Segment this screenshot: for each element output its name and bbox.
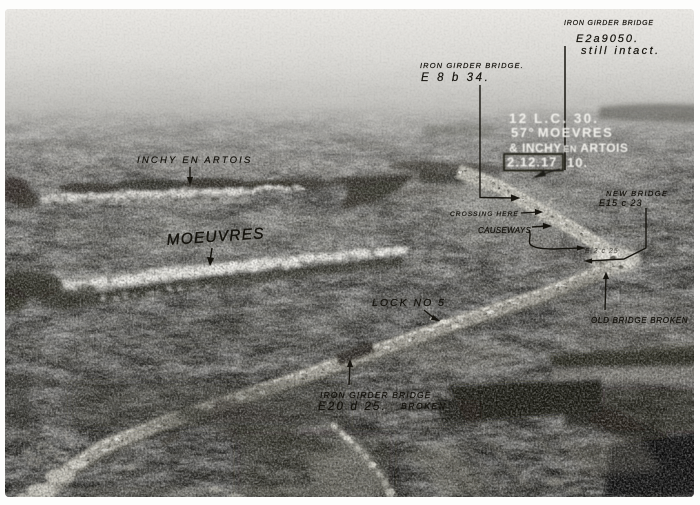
- svg-text:E 8 b 34.: E 8 b 34.: [421, 72, 490, 84]
- svg-text:NEW BRIDGE: NEW BRIDGE: [606, 189, 668, 198]
- svg-text:OLD BRIDGE BROKEN: OLD BRIDGE BROKEN: [591, 316, 688, 325]
- svg-text:2.12.17: 2.12.17: [507, 155, 557, 170]
- svg-text:IRON GIRDER BRIDGE.: IRON GIRDER BRIDGE.: [420, 61, 524, 70]
- svg-text:E20 d 25.: E20 d 25.: [318, 401, 387, 413]
- svg-text:IRON GIRDER BRIDGE: IRON GIRDER BRIDGE: [564, 20, 654, 27]
- svg-text:E2a9050.: E2a9050.: [576, 33, 639, 45]
- svg-text:CAUSEWAYS: CAUSEWAYS: [478, 226, 531, 235]
- svg-text:E15 c 23: E15 c 23: [599, 198, 643, 208]
- svg-text:IRON GIRDER BRIDGE: IRON GIRDER BRIDGE: [320, 390, 431, 400]
- svg-text:& INCHY EN ARTOIS: & INCHY EN ARTOIS: [509, 141, 628, 155]
- svg-text:12 L.C. 30.: 12 L.C. 30.: [509, 111, 599, 126]
- svg-text:LOCK NO 5: LOCK NO 5: [372, 297, 446, 309]
- svg-text:57° MOEVRES: 57° MOEVRES: [511, 125, 613, 140]
- svg-text:E 2 c 25: E 2 c 25: [585, 248, 619, 255]
- svg-text:still intact.: still intact.: [581, 45, 661, 57]
- svg-text:CROSSING HERE: CROSSING HERE: [450, 211, 519, 218]
- svg-text:INCHY EN ARTOIS: INCHY EN ARTOIS: [137, 155, 253, 166]
- svg-text:10.: 10.: [567, 155, 588, 170]
- svg-text:BROKEN: BROKEN: [401, 401, 447, 411]
